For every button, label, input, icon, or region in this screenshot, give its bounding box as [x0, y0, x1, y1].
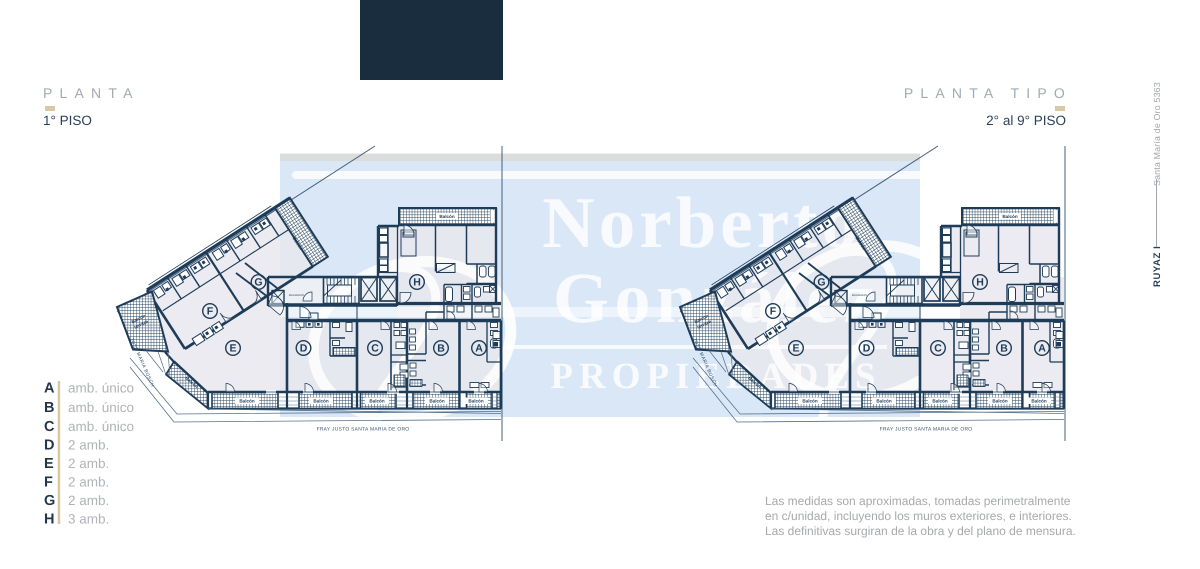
svg-text:amb. único: amb. único [68, 419, 134, 434]
svg-text:E: E [44, 456, 54, 472]
svg-text:RUYAZ I: RUYAZ I [1152, 246, 1163, 287]
svg-text:1° PISO: 1° PISO [43, 113, 92, 128]
svg-text:PLANTA TIPO: PLANTA TIPO [904, 85, 1072, 101]
svg-text:Las medidas son aproximadas, t: Las medidas son aproximadas, tomadas per… [765, 494, 1071, 508]
svg-text:F: F [44, 475, 53, 491]
svg-text:2 amb.: 2 amb. [68, 493, 109, 508]
svg-text:C: C [44, 419, 55, 435]
svg-text:2 amb.: 2 amb. [68, 438, 109, 453]
svg-text:PLANTA: PLANTA [43, 85, 140, 101]
svg-text:A: A [44, 381, 55, 397]
svg-text:G: G [44, 493, 55, 509]
svg-text:B: B [44, 400, 54, 416]
svg-text:en c/unidad, incluyendo los mu: en c/unidad, incluyendo los muros exteri… [765, 509, 1072, 523]
svg-text:amb. único: amb. único [68, 381, 134, 396]
svg-text:2 amb.: 2 amb. [68, 456, 109, 471]
svg-text:D: D [44, 438, 54, 454]
svg-text:2° al 9° PISO: 2° al 9° PISO [986, 113, 1066, 128]
svg-text:Santa María de Oro 5363: Santa María de Oro 5363 [1152, 82, 1162, 186]
svg-text:Las definitivas surgiran de la: Las definitivas surgiran de la obra y de… [765, 524, 1076, 538]
svg-text:2 amb.: 2 amb. [68, 475, 109, 490]
svg-text:amb. único: amb. único [68, 400, 134, 415]
svg-text:H: H [44, 512, 54, 528]
svg-text:3 amb.: 3 amb. [68, 512, 109, 527]
